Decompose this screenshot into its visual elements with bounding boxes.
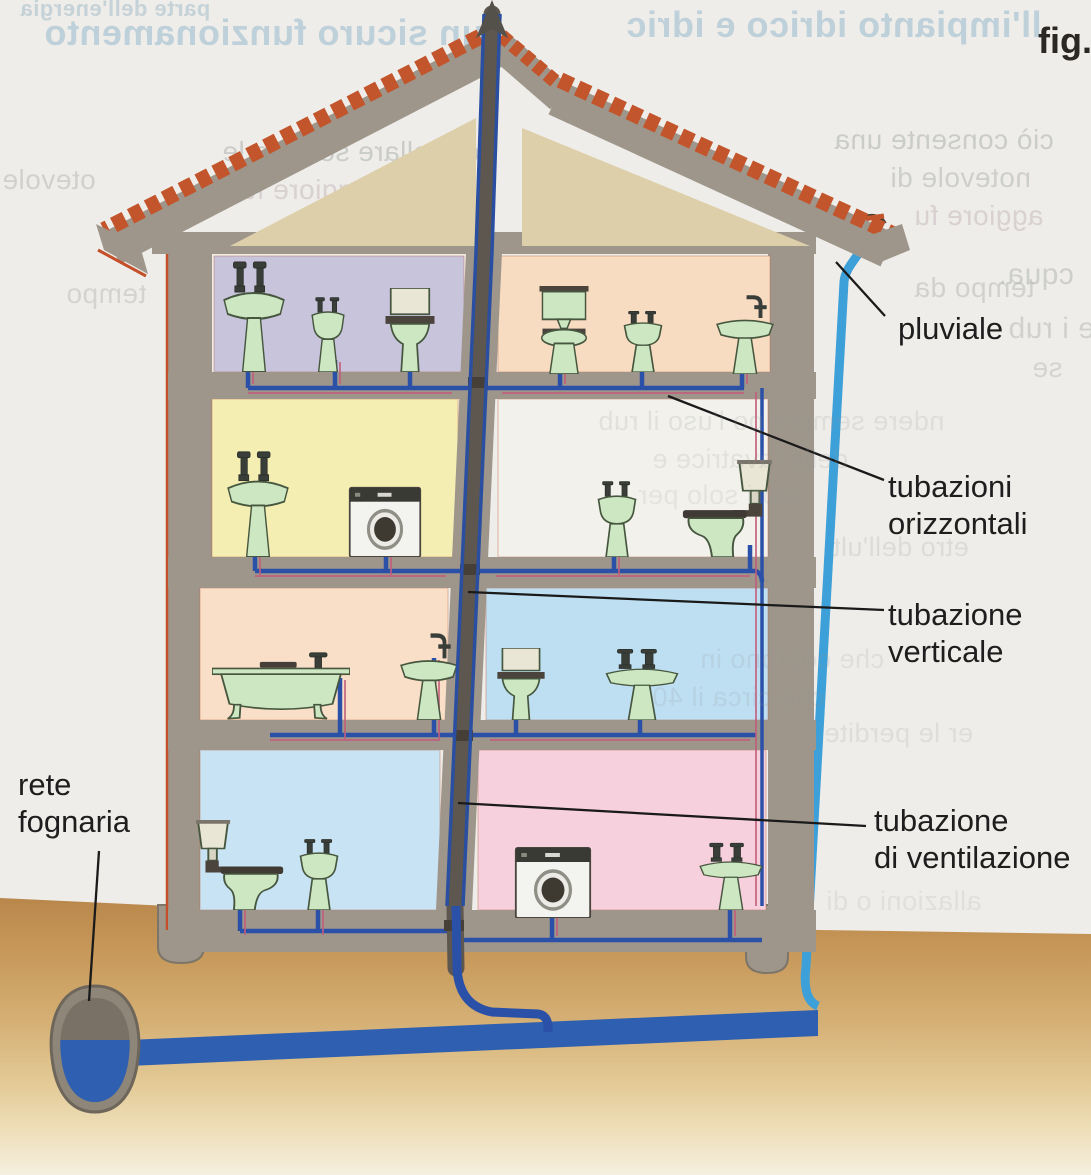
label-line: rete bbox=[18, 766, 130, 803]
ghost-text-fragment: che circa il 40 bbox=[652, 682, 825, 713]
ghost-text-fragment: che coprono in bbox=[700, 644, 884, 675]
label-line: verticale bbox=[888, 633, 1022, 670]
label-line: di ventilazione bbox=[874, 839, 1070, 876]
ghost-text-fragment: della lavatrice e bbox=[652, 444, 848, 475]
label-tubazione-di-ventilazione: tubazione di ventilazione bbox=[874, 802, 1070, 876]
label-line: orizzontali bbox=[888, 505, 1028, 542]
textbook-figure-page: parte dell'energiaun sicuro funzionament… bbox=[0, 0, 1091, 1175]
label-line: tubazione bbox=[874, 802, 1070, 839]
show-through-text-overlay: ndere sempre po l'uso il rubdella lavatr… bbox=[0, 0, 1091, 1175]
label-tubazione-verticale: tubazione verticale bbox=[888, 596, 1022, 670]
label-tubazioni-orizzontali: tubazioni orizzontali bbox=[888, 468, 1028, 542]
label-pluviale: pluviale bbox=[898, 310, 1003, 347]
label-line: fognaria bbox=[18, 803, 130, 840]
ghost-text-fragment: ndere sempre po l'uso il rub bbox=[598, 406, 944, 437]
label-line: tubazione bbox=[888, 596, 1022, 633]
ghost-text-fragment: atori solo per bbox=[638, 480, 801, 511]
label-rete-fognaria: rete fognaria bbox=[18, 766, 130, 840]
label-line: tubazioni bbox=[888, 468, 1028, 505]
figure-caption: fig. bbox=[1038, 20, 1091, 62]
